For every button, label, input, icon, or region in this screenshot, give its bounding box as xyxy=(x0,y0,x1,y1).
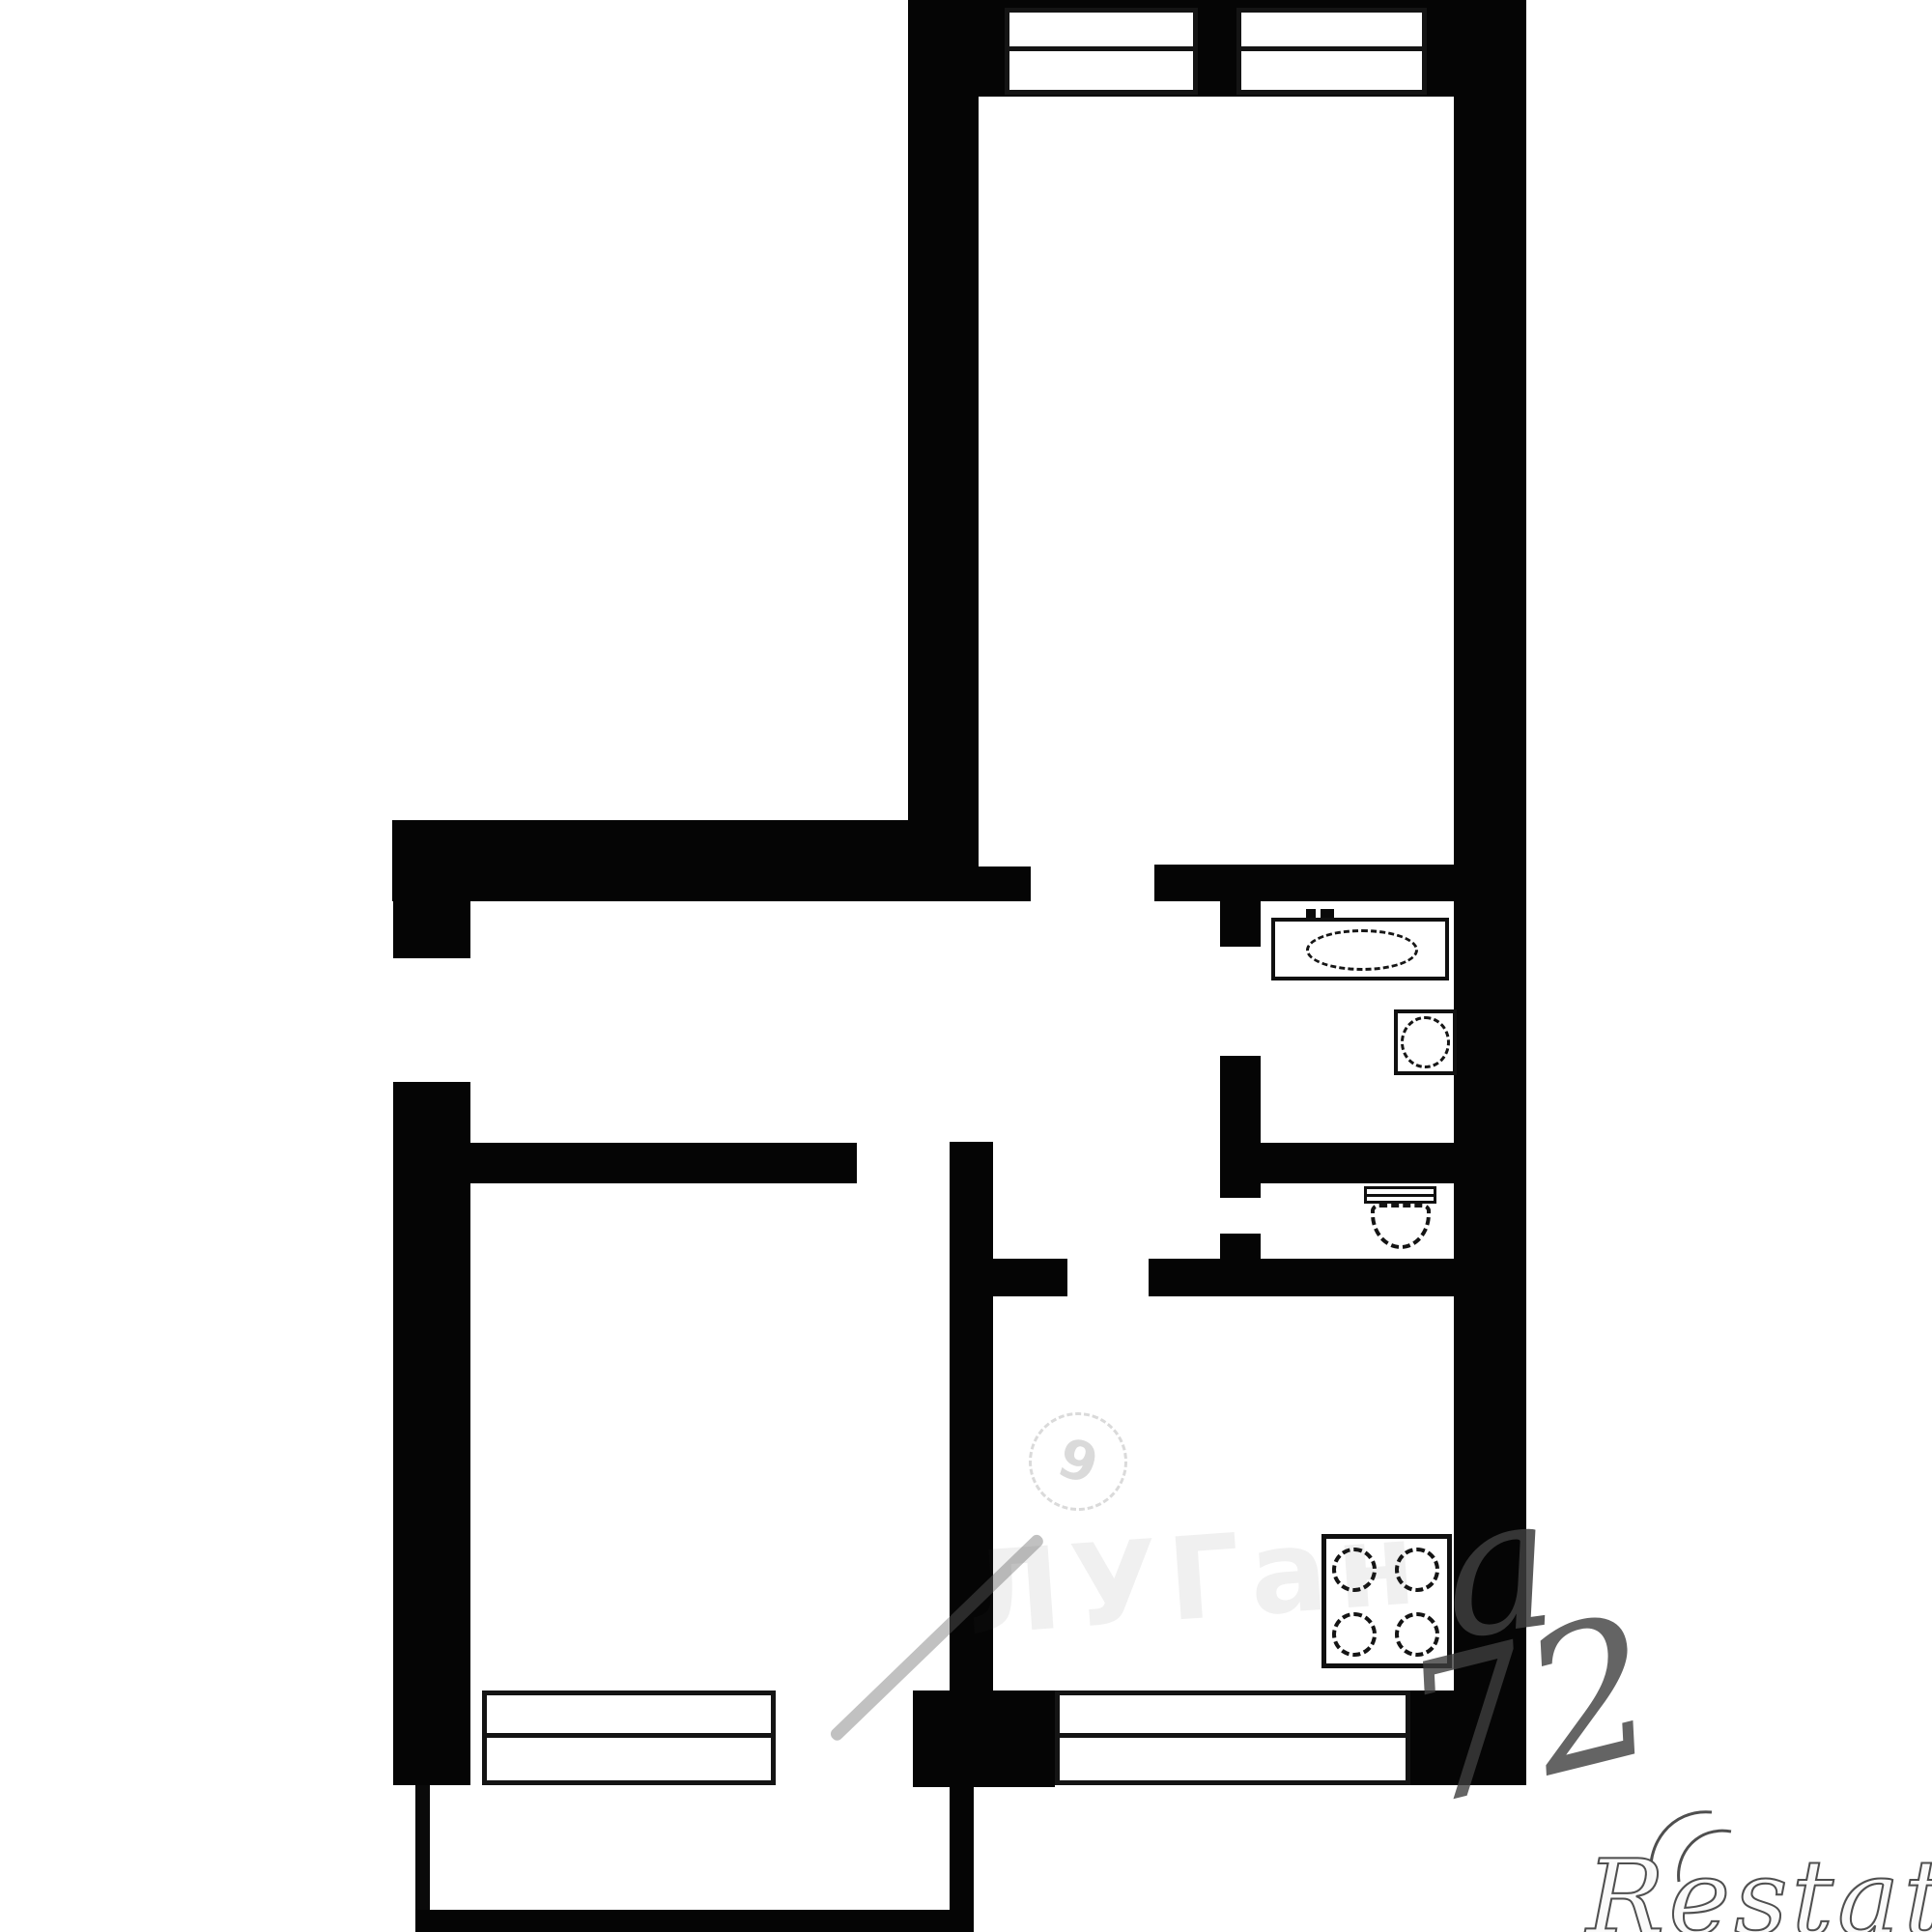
bathtub-basin-icon xyxy=(1306,929,1418,971)
wall-bathroom-left-mid xyxy=(1220,1056,1261,1198)
window-mullion xyxy=(1240,46,1423,51)
bathtub-faucet-icon xyxy=(1321,909,1334,918)
toilet-tank-line xyxy=(1367,1194,1434,1197)
bathtub-icon xyxy=(1271,918,1449,980)
wall-bottom-window-pier xyxy=(913,1690,1055,1787)
wall-kitchen-top-left xyxy=(993,1259,1067,1296)
restate-logo-curl-icon xyxy=(1642,1799,1758,1888)
wall-bedroom-bottom xyxy=(1154,865,1454,901)
wall-living-top xyxy=(470,1143,857,1183)
floor-plan: 9 ЛУГан а 72 Restate xyxy=(0,0,1932,1932)
watermark-brand-text: Restate xyxy=(1586,1847,1932,1932)
wall-hall-top xyxy=(392,820,979,901)
wall-kitchen-top-right xyxy=(1149,1259,1454,1296)
window-mullion xyxy=(1009,46,1194,51)
wall-left-upper xyxy=(393,820,470,958)
stove-icon xyxy=(1321,1534,1452,1668)
wall-bathroom-left-upper xyxy=(1220,901,1261,947)
wall-right-exterior xyxy=(1454,0,1526,1785)
wall-kitchen-window-right xyxy=(1410,1690,1526,1785)
wall-bath-toilet-divider xyxy=(1258,1143,1454,1183)
bathtub-faucet-icon xyxy=(1306,909,1316,918)
window-bedroom-left xyxy=(1005,8,1198,95)
burner-icon xyxy=(1332,1612,1377,1657)
window-bedroom-right xyxy=(1236,8,1427,95)
wall-hall-top-step xyxy=(979,867,1031,901)
watermark-logo-digit: 9 xyxy=(1050,1426,1105,1497)
wall-left-lower xyxy=(393,1082,470,1785)
toilet-bowl-icon xyxy=(1371,1204,1431,1249)
wall-bedroom-left xyxy=(908,0,979,867)
wall-central-vertical xyxy=(950,1142,993,1690)
window-mullion xyxy=(1059,1733,1406,1738)
sink-icon xyxy=(1394,1009,1457,1075)
wall-balcony-bottom xyxy=(415,1910,950,1932)
burner-icon xyxy=(1395,1612,1439,1657)
window-living-room xyxy=(482,1690,776,1785)
burner-icon xyxy=(1395,1548,1439,1592)
watermark-logo-circle-icon: 9 xyxy=(1016,1400,1141,1524)
wall-top-exterior xyxy=(908,0,1526,97)
sink-basin-icon xyxy=(1401,1016,1450,1068)
balcony-rail-line xyxy=(415,1785,430,1910)
toilet-tank-icon xyxy=(1364,1186,1436,1204)
wall-balcony-right xyxy=(950,1787,974,1932)
burner-icon xyxy=(1332,1548,1377,1592)
window-kitchen xyxy=(1055,1690,1410,1785)
window-mullion xyxy=(486,1733,772,1738)
